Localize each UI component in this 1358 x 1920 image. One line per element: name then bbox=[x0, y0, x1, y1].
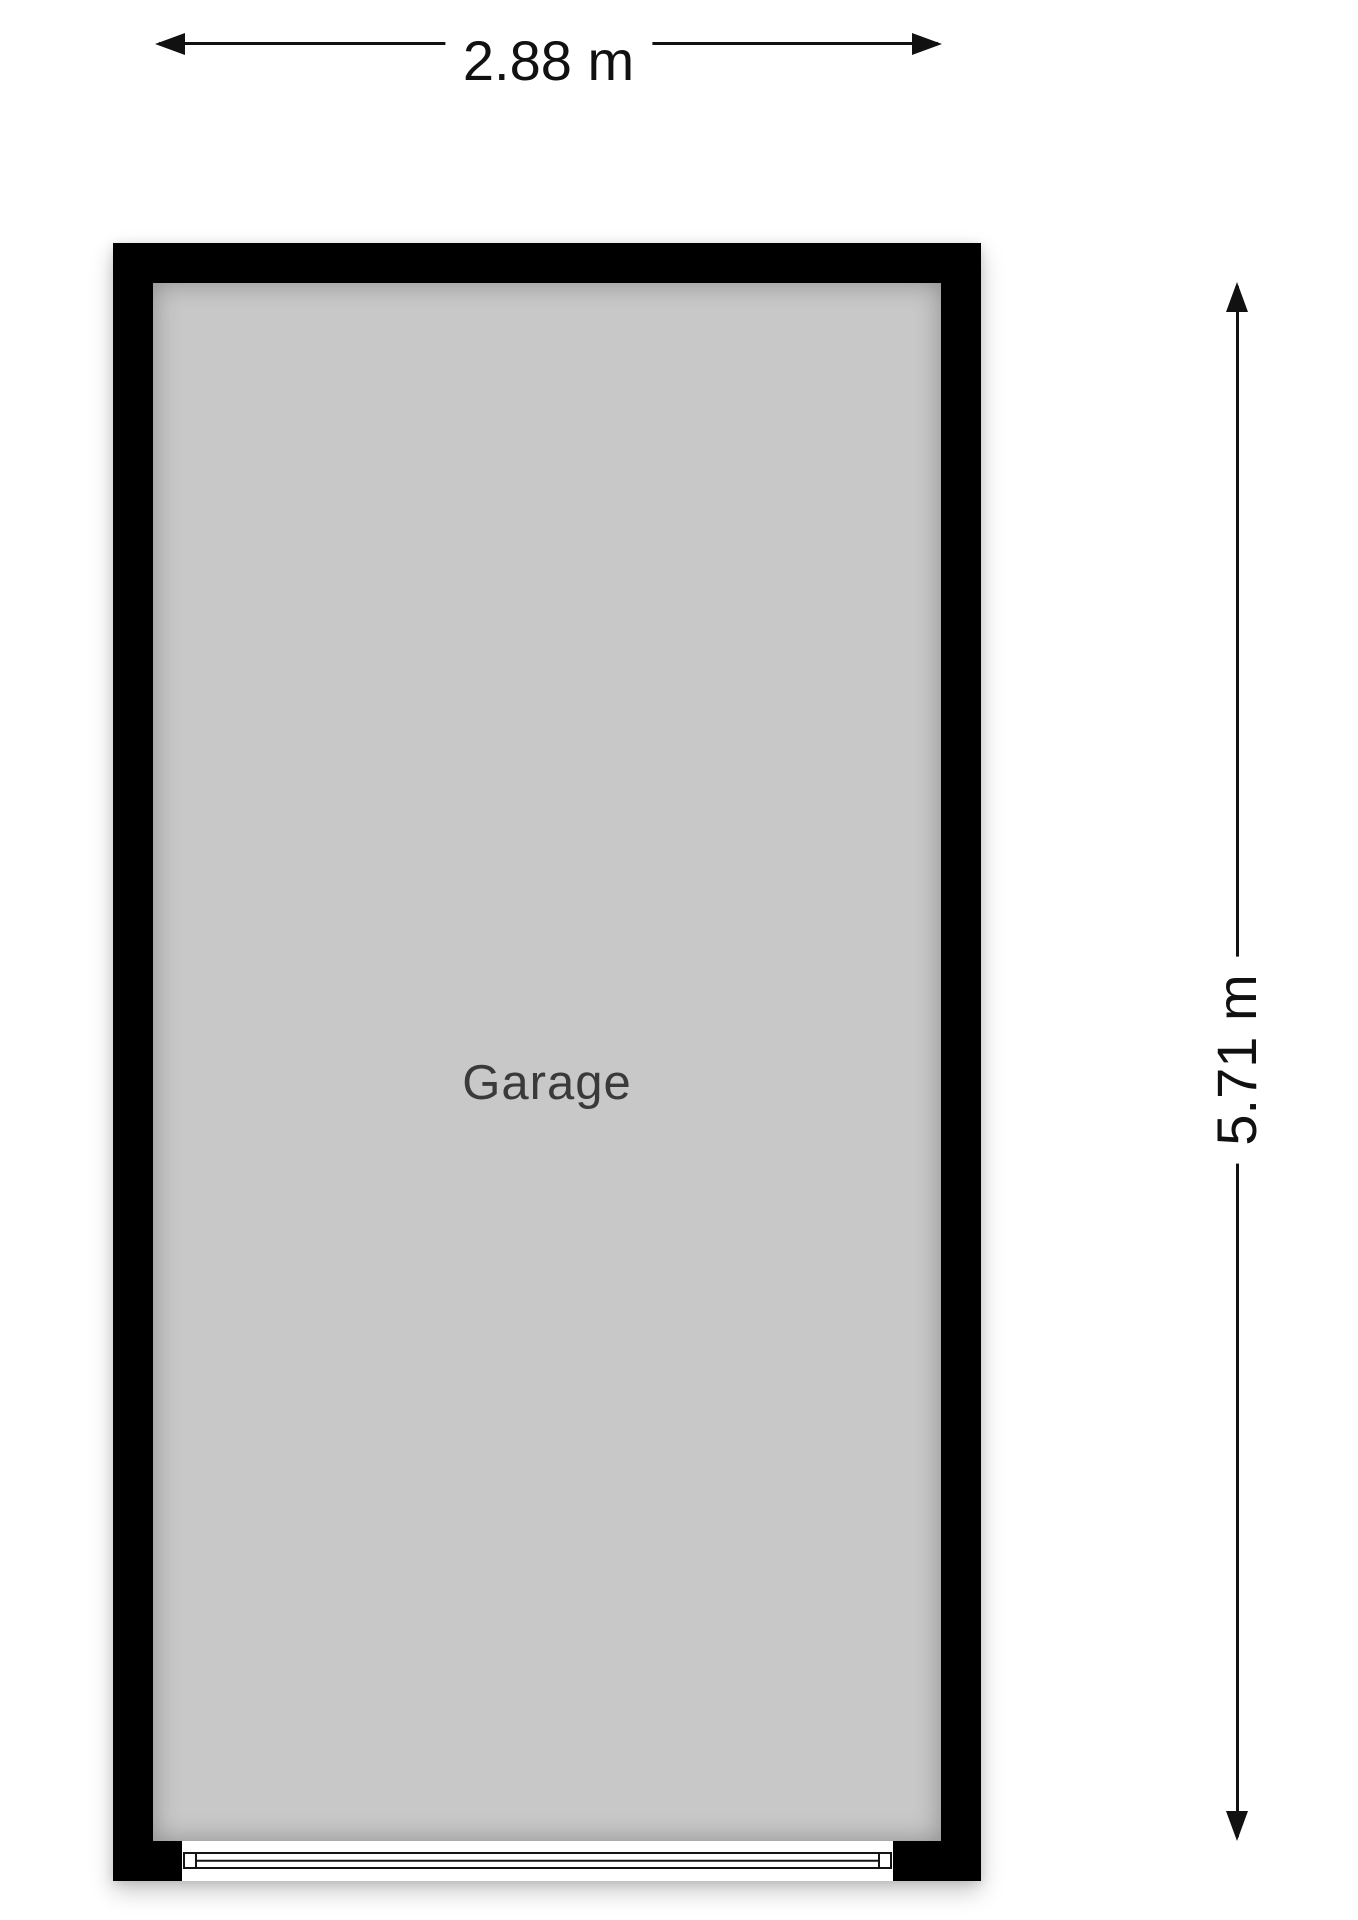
arrow-right-icon bbox=[912, 33, 942, 55]
garage-room-walls: Garage bbox=[113, 243, 981, 1881]
room-label: Garage bbox=[462, 1055, 631, 1111]
height-dimension-label: 5.71 m bbox=[1206, 956, 1268, 1163]
height-dimension: 5.71 m bbox=[1222, 282, 1252, 1841]
garage-door-icon bbox=[183, 1852, 892, 1869]
door-end-cap-left bbox=[185, 1854, 197, 1867]
arrow-up-icon bbox=[1226, 282, 1248, 312]
width-dimension: 2.88 m bbox=[155, 28, 942, 98]
garage-room-floor: Garage bbox=[153, 283, 941, 1841]
arrow-left-icon bbox=[155, 33, 185, 55]
door-middle-line bbox=[197, 1859, 878, 1862]
floorplan-canvas: 2.88 m 5.71 m Garage bbox=[0, 0, 1358, 1920]
garage-door-opening bbox=[182, 1841, 893, 1881]
width-dimension-label: 2.88 m bbox=[445, 30, 652, 92]
arrow-down-icon bbox=[1226, 1811, 1248, 1841]
door-end-cap-right bbox=[878, 1854, 890, 1867]
